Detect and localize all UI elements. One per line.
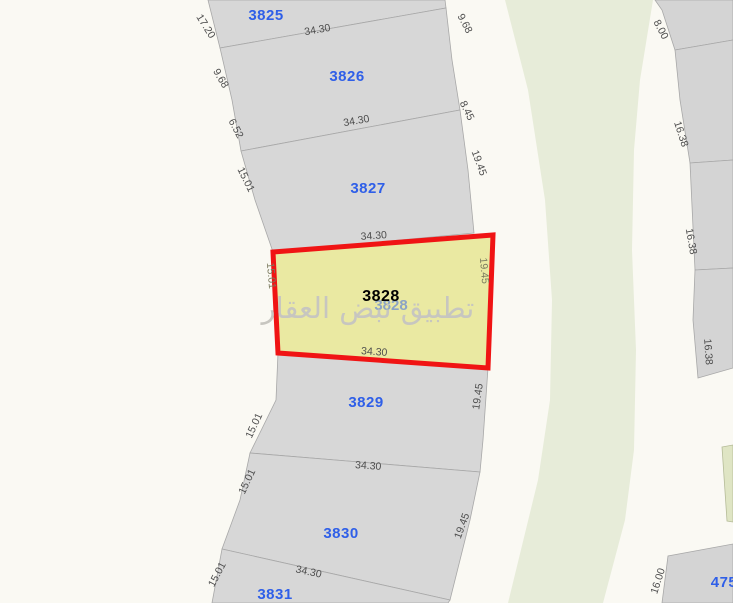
dimension-label: 34.30 bbox=[361, 345, 388, 359]
parcel-label-3831: 3831 bbox=[257, 586, 292, 603]
parcel-label-3825: 3825 bbox=[248, 7, 283, 24]
dimension-label: 16.38 bbox=[701, 338, 715, 365]
parcel-3828-label: 3828 bbox=[362, 288, 400, 305]
parcel-label-3827: 3827 bbox=[350, 180, 385, 197]
dimension-label: 19.45 bbox=[477, 257, 491, 284]
dimension-label: 15.01 bbox=[264, 262, 278, 289]
parcel-label-3830: 3830 bbox=[323, 525, 358, 542]
parcel-label-3829: 3829 bbox=[348, 394, 383, 411]
parcel-label-475: 475 bbox=[711, 574, 733, 591]
cadastral-map-view: 3828 تطبيق نبض العقار 17.209.686.5215.01… bbox=[0, 0, 733, 603]
dimension-label: 34.30 bbox=[360, 229, 387, 243]
map-canvas[interactable]: 3828 تطبيق نبض العقار 17.209.686.5215.01… bbox=[0, 0, 733, 603]
dimension-label: 34.30 bbox=[355, 459, 382, 473]
parcel-3829[interactable] bbox=[250, 353, 488, 472]
parcel-label-3826: 3826 bbox=[329, 68, 364, 85]
